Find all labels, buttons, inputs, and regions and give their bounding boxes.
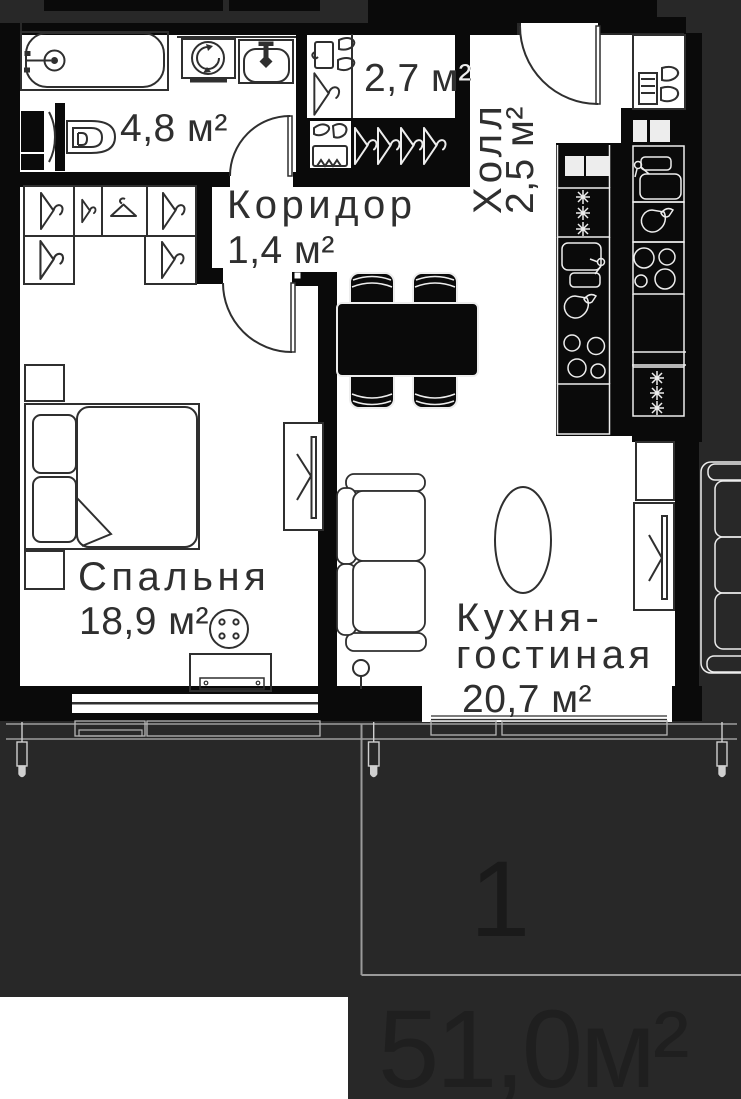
svg-text:51,0м²: 51,0м² — [378, 988, 688, 1099]
svg-text:Коридор: Коридор — [227, 183, 416, 227]
svg-text:2,5 м²: 2,5 м² — [499, 106, 542, 214]
svg-text:18,9 м²: 18,9 м² — [79, 600, 209, 643]
svg-text:20,7 м²: 20,7 м² — [462, 678, 592, 721]
svg-text:1,4 м²: 1,4 м² — [227, 229, 335, 272]
svg-text:1: 1 — [470, 838, 530, 959]
svg-text:4,8 м²: 4,8 м² — [120, 107, 228, 150]
svg-text:Спальня: Спальня — [78, 555, 270, 599]
svg-text:гостиная: гостиная — [456, 633, 655, 677]
